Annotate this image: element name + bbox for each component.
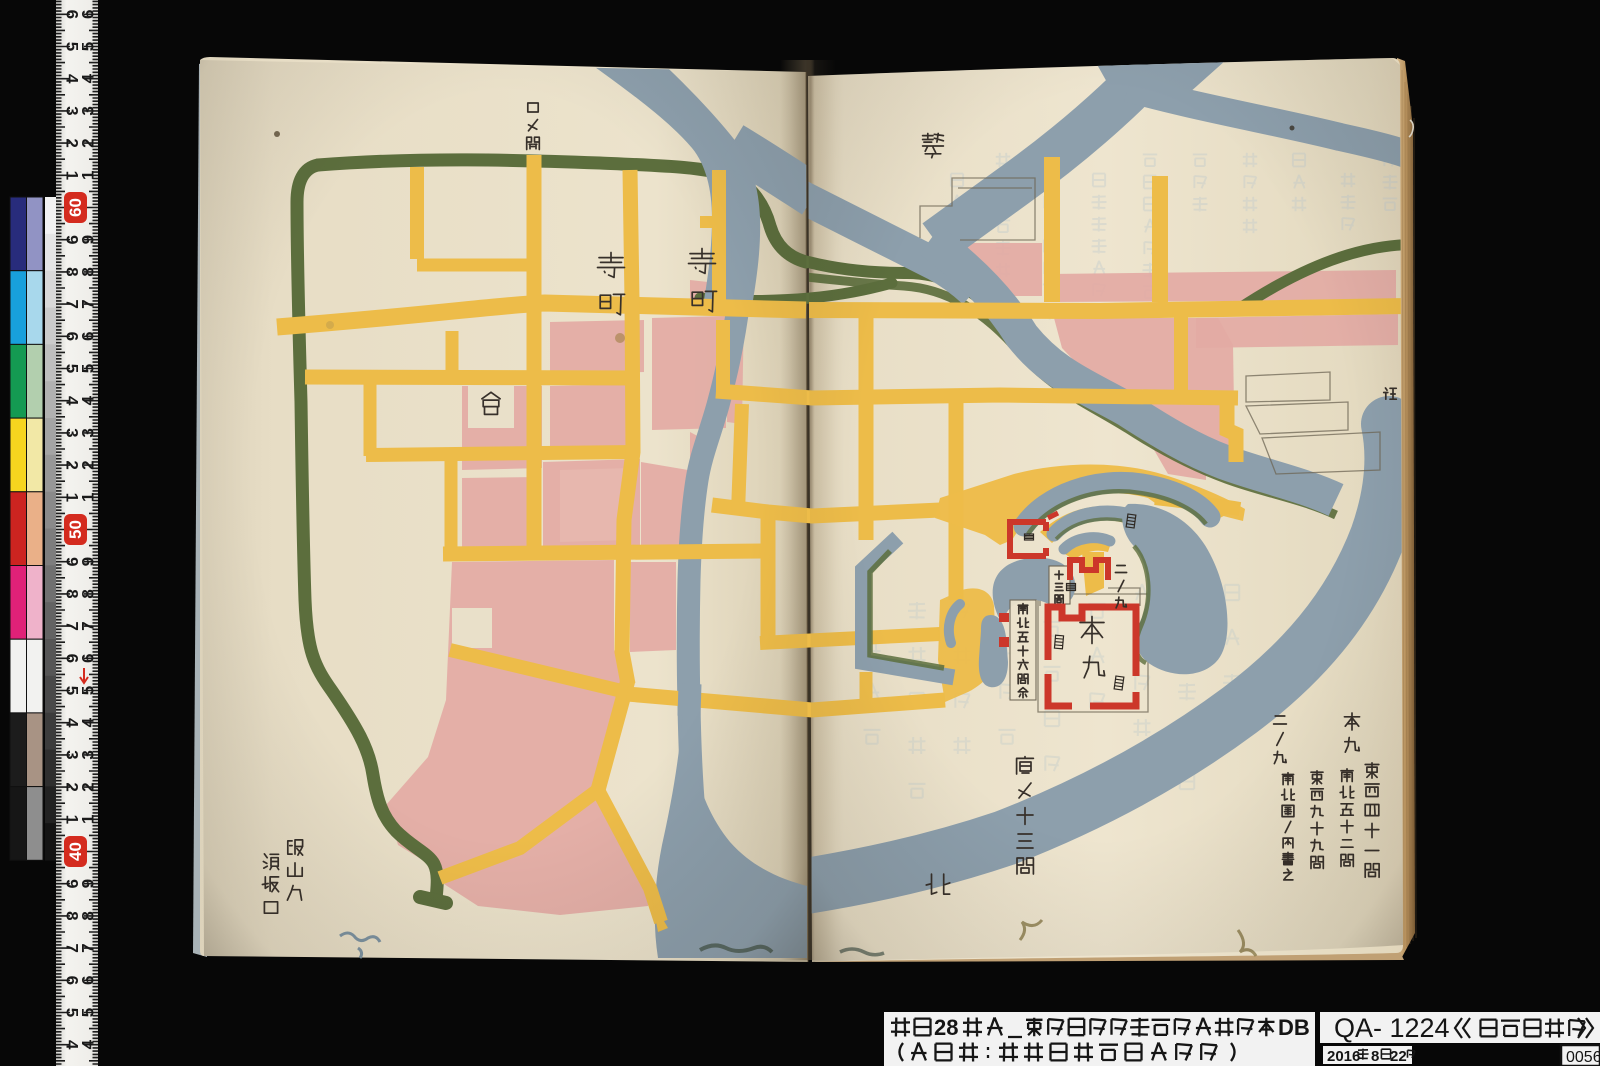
svg-text:6: 6 (79, 654, 98, 663)
svg-text:9: 9 (79, 235, 98, 244)
svg-text:2: 2 (79, 138, 98, 147)
svg-text:3: 3 (79, 106, 98, 115)
svg-text:22: 22 (1390, 1048, 1407, 1065)
svg-text:3: 3 (79, 750, 98, 759)
svg-text:9: 9 (79, 557, 98, 566)
svg-text:6: 6 (79, 976, 98, 985)
svg-text:5: 5 (79, 42, 98, 51)
svg-text:8: 8 (79, 267, 98, 276)
svg-text:4: 4 (79, 717, 98, 727)
svg-text:60: 60 (66, 198, 85, 217)
svg-text:5: 5 (79, 364, 98, 373)
svg-text:8: 8 (1371, 1048, 1379, 1065)
svg-text:1: 1 (79, 171, 98, 180)
svg-text:0056: 0056 (1566, 1049, 1600, 1066)
svg-text:3: 3 (79, 428, 98, 437)
svg-text:5: 5 (79, 1008, 98, 1017)
svg-text:40: 40 (66, 842, 85, 861)
svg-text:DB: DB (1278, 1015, 1310, 1040)
svg-text:28: 28 (934, 1015, 958, 1040)
svg-text:7: 7 (79, 299, 98, 308)
svg-text:9: 9 (79, 879, 98, 888)
svg-text:8: 8 (79, 911, 98, 920)
svg-text:1: 1 (79, 815, 98, 824)
svg-text:6: 6 (79, 10, 98, 19)
svg-text:2: 2 (79, 782, 98, 791)
svg-text:4: 4 (79, 1039, 98, 1049)
svg-text:4: 4 (79, 73, 98, 83)
svg-text:1: 1 (79, 493, 98, 502)
svg-text:7: 7 (79, 943, 98, 952)
svg-text:4: 4 (79, 395, 98, 405)
svg-text:QA- 1224: QA- 1224 (1334, 1013, 1450, 1043)
svg-text:50: 50 (66, 520, 85, 539)
svg-text:8: 8 (79, 589, 98, 598)
svg-text:2: 2 (79, 460, 98, 469)
svg-text:5: 5 (79, 686, 98, 695)
svg-text:7: 7 (79, 621, 98, 630)
svg-text:2016: 2016 (1327, 1048, 1360, 1065)
svg-text:6: 6 (79, 332, 98, 341)
